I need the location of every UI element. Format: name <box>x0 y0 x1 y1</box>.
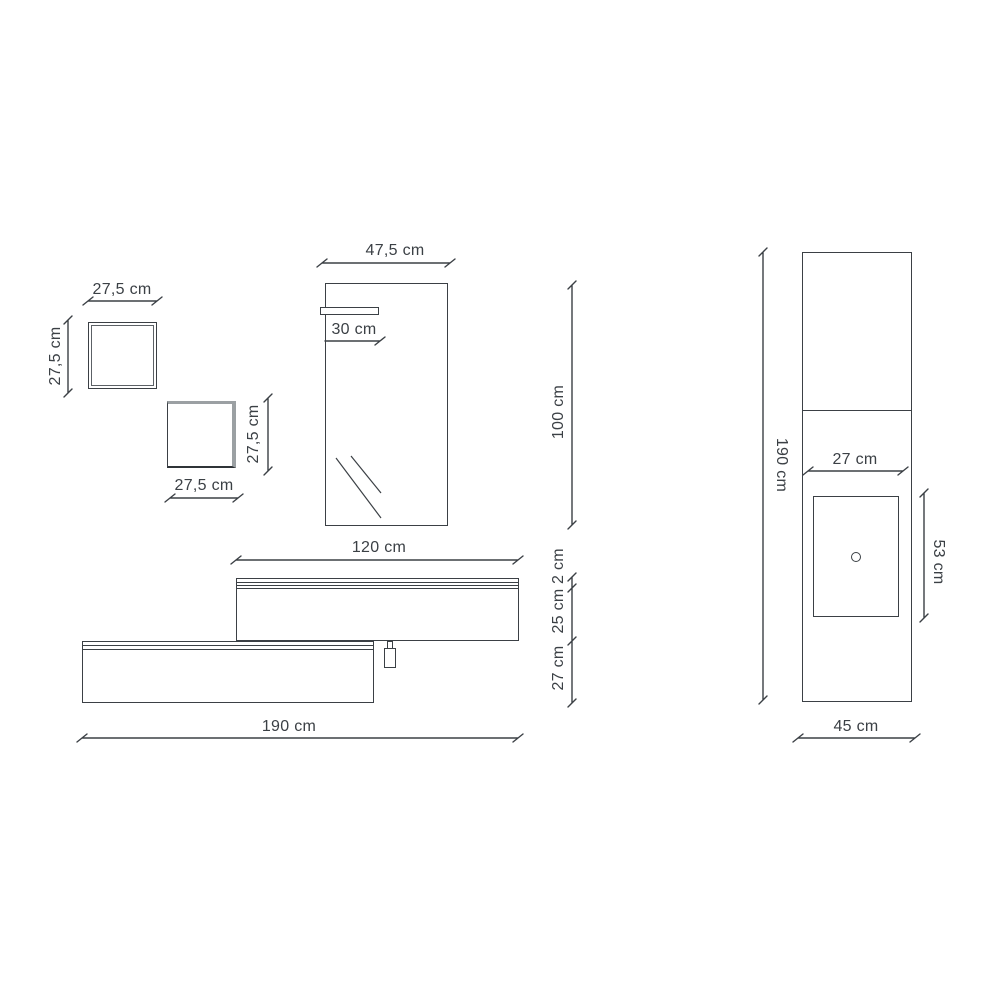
dim-mirror-width-label: 47,5 cm <box>365 242 424 260</box>
dim-cube1-width-label: 27,5 cm <box>92 281 151 299</box>
dim-cube1-height-label: 27,5 cm <box>47 326 65 385</box>
pendant-handle-body <box>384 648 396 668</box>
wall-cube-2 <box>167 401 236 468</box>
dim-mirror-height-line <box>568 281 576 529</box>
dim-column-depth-label: 45 cm <box>833 718 878 736</box>
dim-basin-depth-line <box>920 489 928 622</box>
lower-cabinet-top-edge-line-2 <box>83 649 373 650</box>
side-column <box>802 252 912 702</box>
dim-cube2-height-line <box>264 394 272 475</box>
dim-mirror-height-label: 100 cm <box>550 385 568 439</box>
mirror-shelf <box>320 307 379 315</box>
wall-cube-1 <box>88 322 157 389</box>
dim-cube2-width-label: 27,5 cm <box>174 477 233 495</box>
lower-wall-cabinet <box>82 641 374 703</box>
dim-cube1-height-line <box>64 316 72 397</box>
dim-lower-cabinet-height-label: 27 cm <box>550 645 568 690</box>
dim-cabinet-heights-line <box>568 573 576 707</box>
basin-drain-hole <box>851 552 861 562</box>
column-divider-line <box>803 410 911 411</box>
dim-upper-cabinet-width-line <box>231 556 523 564</box>
dim-shelf-width-label: 30 cm <box>331 321 376 339</box>
dim-top-thickness-label: 2 cm <box>550 548 568 584</box>
dim-cube2-width-line <box>165 494 243 502</box>
wall-cube-1-inner-frame <box>91 325 154 386</box>
dim-cube2-height-label: 27,5 cm <box>245 404 263 463</box>
dim-upper-cabinet-width-label: 120 cm <box>352 539 406 557</box>
dim-mirror-width-line <box>317 259 455 267</box>
upper-cabinet-top-edge-line-3 <box>237 588 518 589</box>
mirror <box>325 283 448 526</box>
dim-upper-cabinet-height-label: 25 cm <box>550 588 568 633</box>
dim-column-height-label: 190 cm <box>772 438 790 492</box>
lower-cabinet-top-edge-line-1 <box>83 645 373 646</box>
upper-cabinet-top-edge-line-2 <box>237 585 518 586</box>
technical-drawing-canvas: 27,5 cm 27,5 cm 27,5 cm 27,5 cm 47,5 cm … <box>0 0 1000 1000</box>
dim-column-height-line <box>759 248 767 704</box>
upper-wall-cabinet <box>236 578 519 641</box>
dim-total-width-label: 190 cm <box>262 718 316 736</box>
upper-cabinet-top-edge-line-1 <box>237 582 518 583</box>
dim-basin-depth-label: 53 cm <box>929 539 947 584</box>
dim-basin-width-label: 27 cm <box>832 451 877 469</box>
